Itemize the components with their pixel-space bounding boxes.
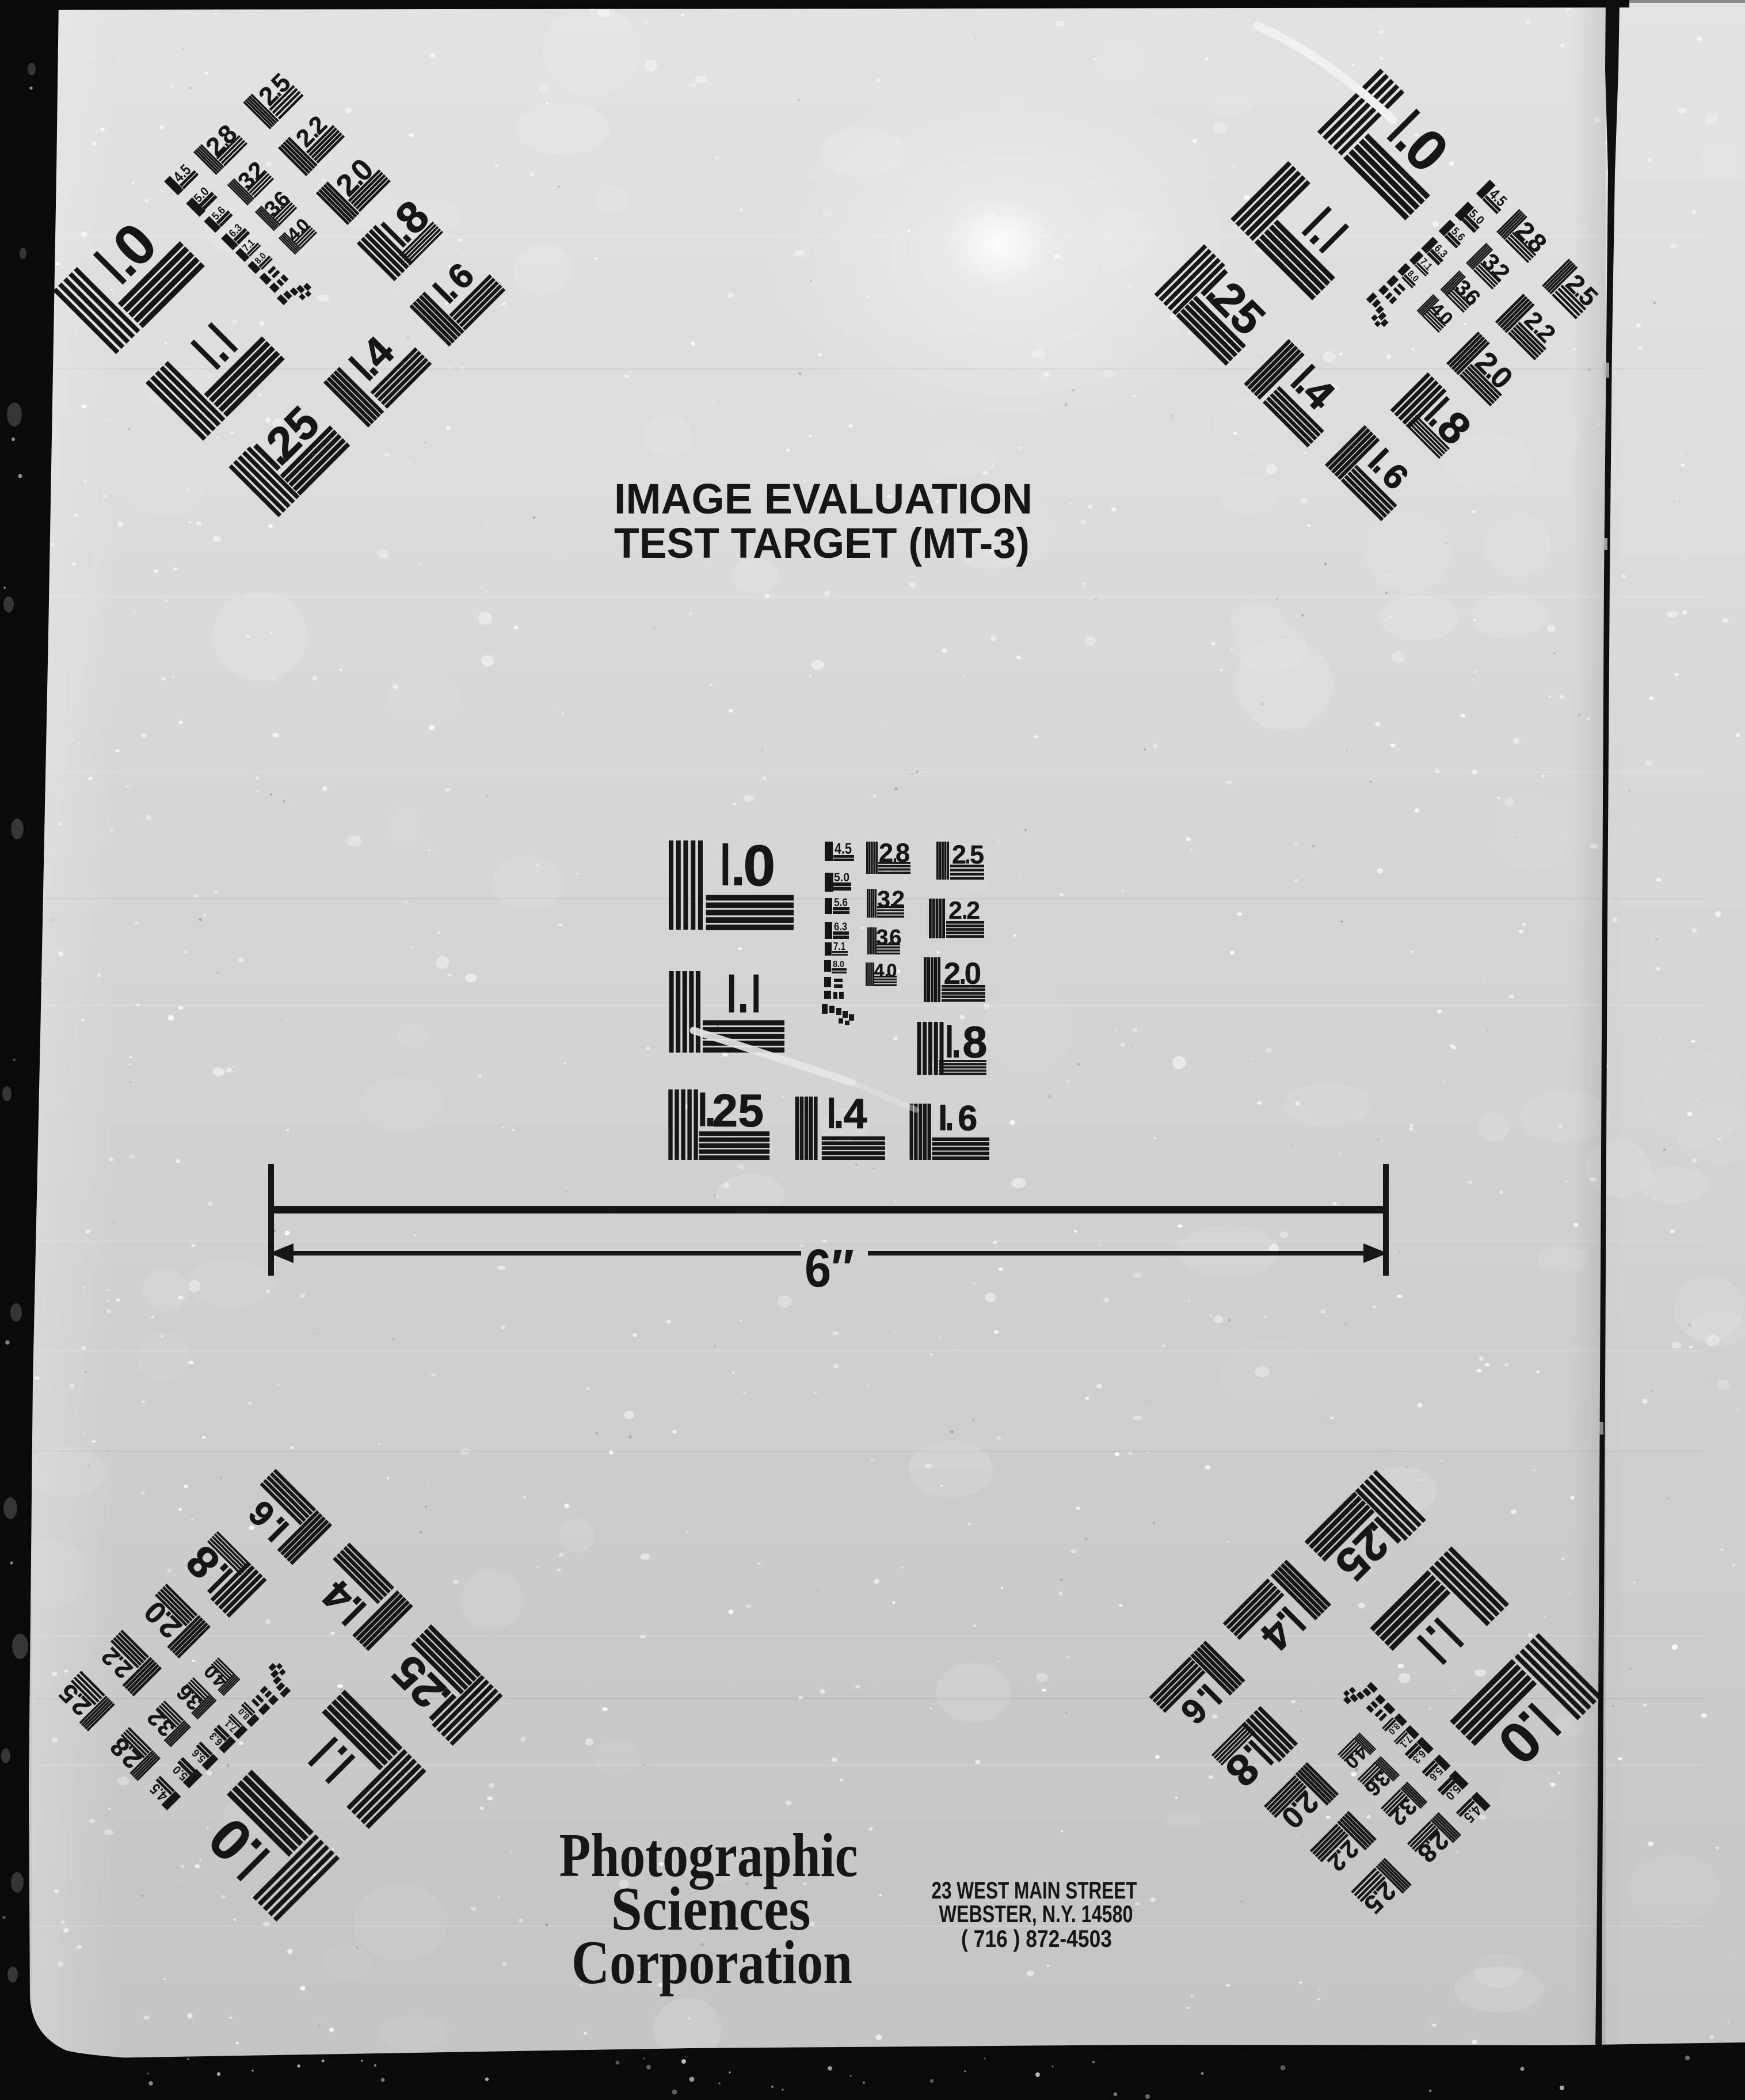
svg-text:6″: 6″ <box>805 1238 854 1298</box>
svg-text:( 716 ) 872-4503: ( 716 ) 872-4503 <box>961 1925 1112 1952</box>
svg-text:WEBSTER, N.Y. 14580: WEBSTER, N.Y. 14580 <box>939 1900 1133 1927</box>
svg-text:TEST TARGET (MT-3): TEST TARGET (MT-3) <box>614 519 1030 567</box>
svg-text:IMAGE EVALUATION: IMAGE EVALUATION <box>614 475 1032 523</box>
svg-text:Corporation: Corporation <box>571 1928 852 1997</box>
svg-text:23 WEST MAIN STREET: 23 WEST MAIN STREET <box>932 1877 1137 1904</box>
